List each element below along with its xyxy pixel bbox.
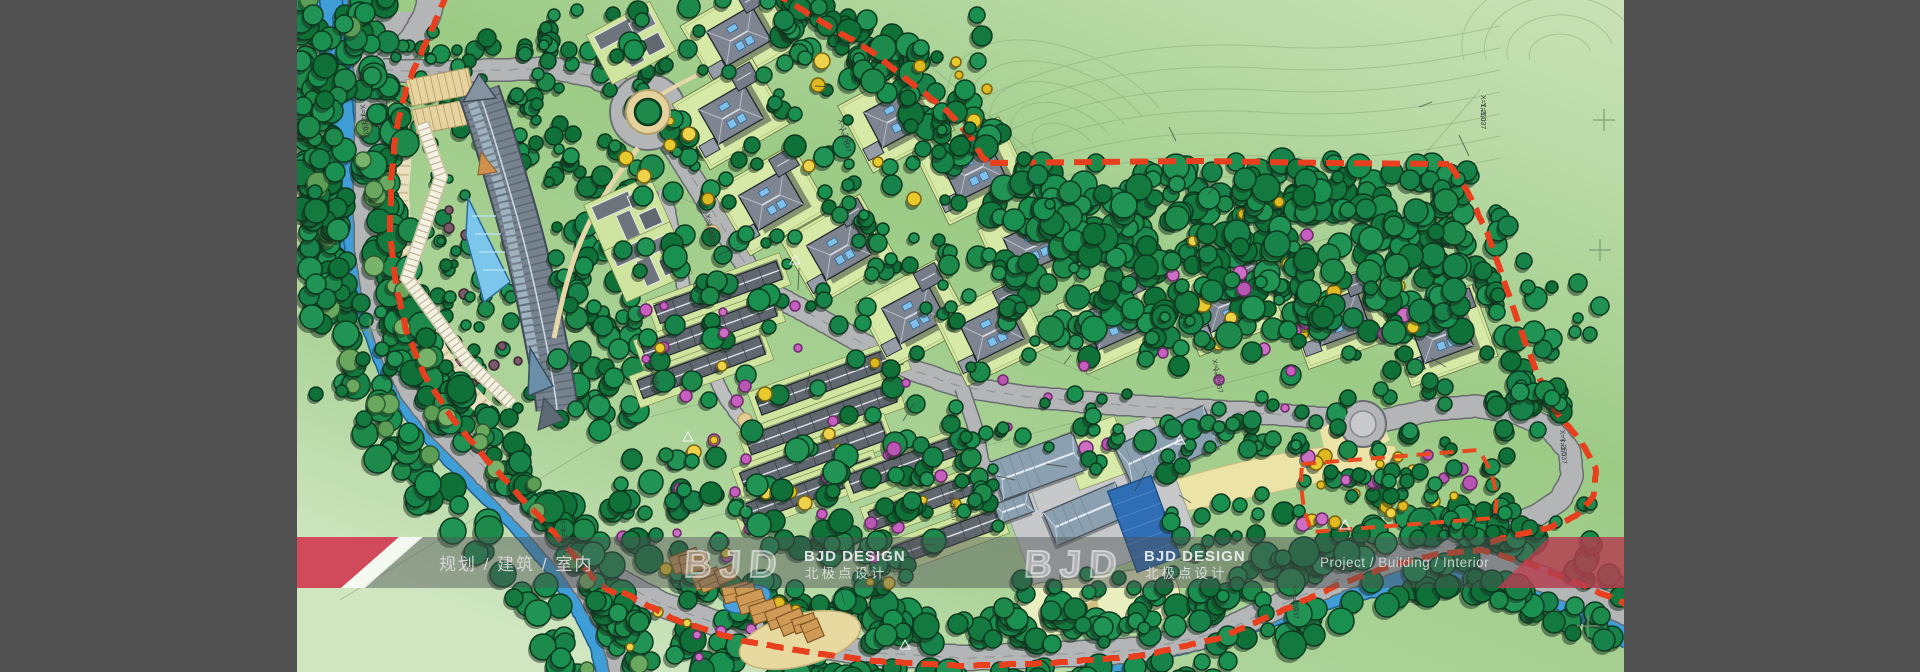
svg-text:规划 / 建筑 / 室内: 规划 / 建筑 / 室内 — [439, 555, 593, 574]
svg-text:BJD DESIGN: BJD DESIGN — [1144, 548, 1246, 565]
svg-text:Project / Building / Interior: Project / Building / Interior — [1320, 555, 1489, 570]
svg-text:BJD: BJD — [683, 544, 786, 586]
svg-text:北极点设计: 北极点设计 — [1145, 566, 1228, 581]
svg-text:BJD DESIGN: BJD DESIGN — [804, 548, 906, 565]
svg-text:北极点设计: 北极点设计 — [805, 566, 888, 581]
svg-text:Y=1,037: Y=1,037 — [1479, 103, 1486, 129]
svg-text:BJD: BJD — [1023, 544, 1126, 586]
